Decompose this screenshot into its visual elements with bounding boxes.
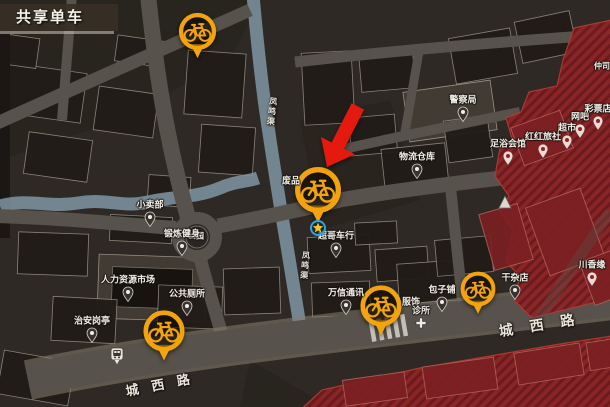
poi-marker: [592, 115, 604, 136]
poi-marker: [144, 211, 156, 232]
poi-pin-icon: [436, 296, 448, 312]
poi-pin-icon: [592, 115, 604, 131]
poi-marker: [537, 143, 549, 164]
poi-marker: [411, 163, 423, 184]
poi-label: 川香缘: [578, 258, 605, 271]
bike-pin[interactable]: [456, 267, 500, 355]
poi-pin-icon: [86, 327, 98, 343]
poi-pin-icon: [330, 242, 342, 258]
poi-marker: [86, 327, 98, 348]
poi-pin-icon: [502, 150, 514, 166]
poi-label: 治安岗亭: [74, 314, 110, 327]
poi-label: 人力资源市场: [101, 273, 155, 286]
poi-pin-icon: [537, 143, 549, 159]
poi-marker: [502, 150, 514, 171]
poi-marker: [176, 240, 188, 261]
poi-label: 锻炼健身: [164, 227, 200, 240]
bike-pin[interactable]: [174, 8, 221, 102]
poi-marker: [122, 286, 134, 307]
poi-pin-icon: [561, 134, 573, 150]
poi-label: 万信通讯: [328, 286, 364, 299]
poi-pin-icon: [144, 211, 156, 227]
poi-pin-icon: [411, 163, 423, 179]
poi-label: 物流仓库: [399, 150, 435, 163]
street-label: 凤鸣渠: [265, 96, 280, 127]
clinic-cross-icon: [415, 317, 427, 329]
poi-label: 诊所: [412, 304, 430, 317]
page-title-bar: 共享单车: [0, 4, 118, 31]
marker-layer: 警察局 物流仓库 小卖部公园 锻炼健身 人力资源市场 公共厕所 治安岗亭 超哥车…: [0, 0, 610, 407]
poi-marker: [340, 299, 352, 320]
bike-pin-graphic: [456, 267, 500, 355]
poi-pin-icon: [122, 286, 134, 302]
poi-marker: [330, 242, 342, 263]
street-label: 城西路: [498, 307, 593, 341]
poi-marker: [574, 123, 586, 144]
poi-label: 警察局: [449, 93, 476, 106]
poi-marker: [561, 134, 573, 155]
poi-label: 足浴会馆: [490, 137, 526, 150]
poi-label: 废品: [282, 174, 300, 187]
poi-label: 小卖部: [136, 198, 163, 211]
poi-pin-icon: [340, 299, 352, 315]
poi-marker: [436, 296, 448, 317]
poi-pin-icon: [457, 106, 469, 122]
poi-label: 仲司: [594, 61, 610, 72]
poi-pin-icon: [574, 123, 586, 139]
poi-marker: [415, 316, 427, 334]
map-viewport[interactable]: 警察局 物流仓库 小卖部公园 锻炼健身 人力资源市场 公共厕所 治安岗亭 超哥车…: [0, 0, 610, 407]
poi-marker: [509, 284, 521, 305]
poi-label: 红红旅社: [525, 130, 561, 143]
poi-marker: [181, 300, 193, 321]
player-star-marker: [309, 219, 327, 242]
poi-marker: [586, 271, 598, 292]
poi-pin-icon: [176, 240, 188, 256]
poi-marker: [457, 106, 469, 127]
poi-pin-icon: [181, 300, 193, 316]
title-underline: [0, 31, 114, 34]
poi-pin-icon: [509, 284, 521, 300]
poi-label: 公共厕所: [169, 287, 205, 300]
poi-pin-icon: [586, 271, 598, 287]
poi-label: 干杂店: [501, 271, 528, 284]
bike-pin-graphic: [174, 8, 221, 102]
poi-label: 彩票店: [584, 102, 610, 115]
poi-label: 包子铺: [428, 283, 455, 296]
bus-stop-icon: [110, 347, 124, 370]
page-title: 共享单车: [16, 9, 84, 26]
